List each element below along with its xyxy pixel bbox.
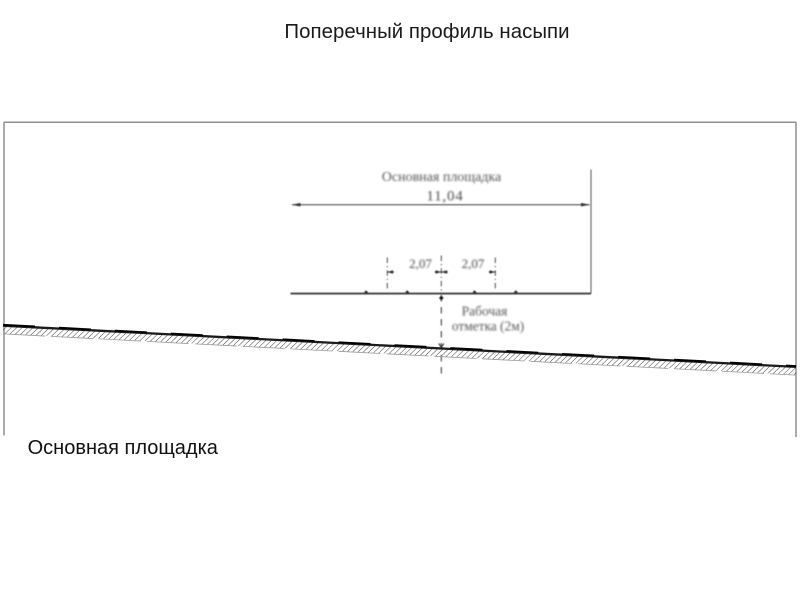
- svg-text:11,04: 11,04: [426, 189, 463, 205]
- svg-text:2,07: 2,07: [462, 256, 485, 271]
- svg-text:Рабочая: Рабочая: [462, 304, 508, 319]
- svg-text:отметка (2м): отметка (2м): [452, 319, 524, 334]
- svg-text:2,07: 2,07: [409, 256, 432, 271]
- svg-text:Основная площадка: Основная площадка: [382, 170, 502, 185]
